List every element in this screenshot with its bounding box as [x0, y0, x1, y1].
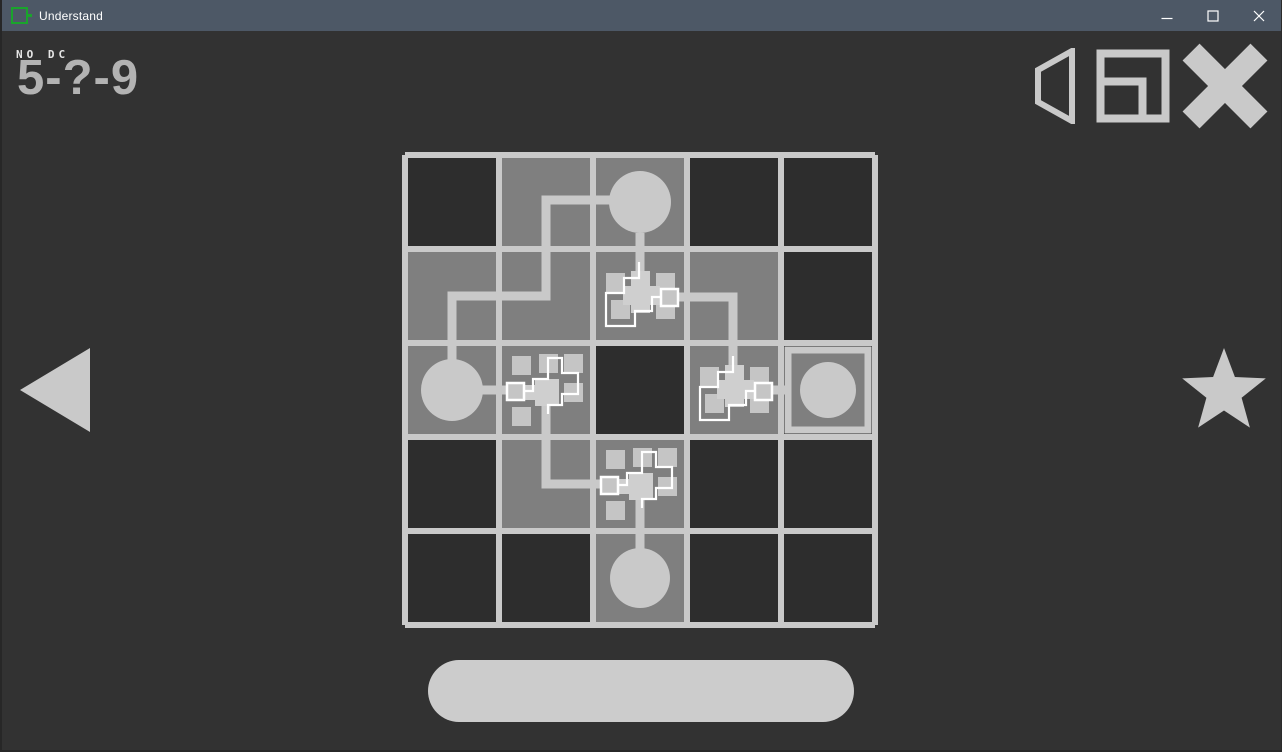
resize-view-button[interactable]	[1096, 49, 1170, 123]
puzzle-cell[interactable]	[593, 343, 687, 437]
titlebar: Understand	[0, 0, 1282, 31]
wire-connector[interactable]	[601, 477, 618, 494]
star-button[interactable]	[1180, 346, 1268, 433]
chip-square	[606, 273, 625, 292]
continue-button[interactable]	[428, 660, 854, 722]
puzzle-cell[interactable]	[405, 531, 499, 625]
puzzle-cell[interactable]	[499, 531, 593, 625]
chip-square	[606, 450, 625, 469]
endpoint-circle[interactable]	[421, 359, 483, 421]
puzzle-cell[interactable]	[781, 437, 875, 531]
puzzle-cell[interactable]	[687, 155, 781, 249]
exit-level-button[interactable]	[1190, 51, 1260, 121]
hud-buttons	[1034, 48, 1260, 124]
close-button[interactable]	[1236, 0, 1282, 31]
chip-square	[564, 354, 583, 373]
chip-core	[629, 473, 653, 500]
endpoint-circle[interactable]	[800, 362, 856, 418]
maximize-button[interactable]	[1190, 0, 1236, 31]
endpoint-circle[interactable]	[609, 171, 671, 233]
puzzle-cell[interactable]	[405, 155, 499, 249]
chip-square	[512, 356, 531, 375]
wire-connector[interactable]	[755, 383, 772, 400]
chip-square	[700, 367, 719, 386]
app-logo-icon	[11, 7, 28, 24]
chip-square	[564, 383, 583, 402]
puzzle-cell[interactable]	[405, 437, 499, 531]
nested-square-icon	[1096, 49, 1170, 123]
puzzle-grid[interactable]	[402, 152, 879, 629]
puzzle-cell[interactable]	[687, 437, 781, 531]
minimize-icon	[1161, 10, 1173, 22]
chip-square	[606, 501, 625, 520]
level-id-label: 5-?-9	[17, 52, 139, 106]
endpoint-circle[interactable]	[610, 548, 670, 608]
speaker-toggle-button[interactable]	[1034, 48, 1076, 124]
puzzle-cell[interactable]	[781, 531, 875, 625]
puzzle-cell[interactable]	[687, 531, 781, 625]
wire-connector[interactable]	[507, 383, 524, 400]
chip-square	[512, 407, 531, 426]
window-title: Understand	[39, 9, 103, 23]
chip-core	[535, 379, 559, 406]
speaker-icon	[1034, 48, 1076, 124]
chip-square	[658, 448, 677, 467]
chip-square	[658, 477, 677, 496]
prev-level-button[interactable]	[20, 348, 90, 435]
left-arrow-icon	[20, 348, 90, 432]
maximize-icon	[1207, 10, 1219, 22]
wire-connector[interactable]	[661, 289, 678, 306]
puzzle-cell[interactable]	[781, 155, 875, 249]
x-cross-icon	[1190, 51, 1260, 121]
star-icon	[1180, 346, 1268, 430]
close-icon	[1253, 10, 1265, 22]
puzzle-cell[interactable]	[781, 249, 875, 343]
minimize-button[interactable]	[1144, 0, 1190, 31]
